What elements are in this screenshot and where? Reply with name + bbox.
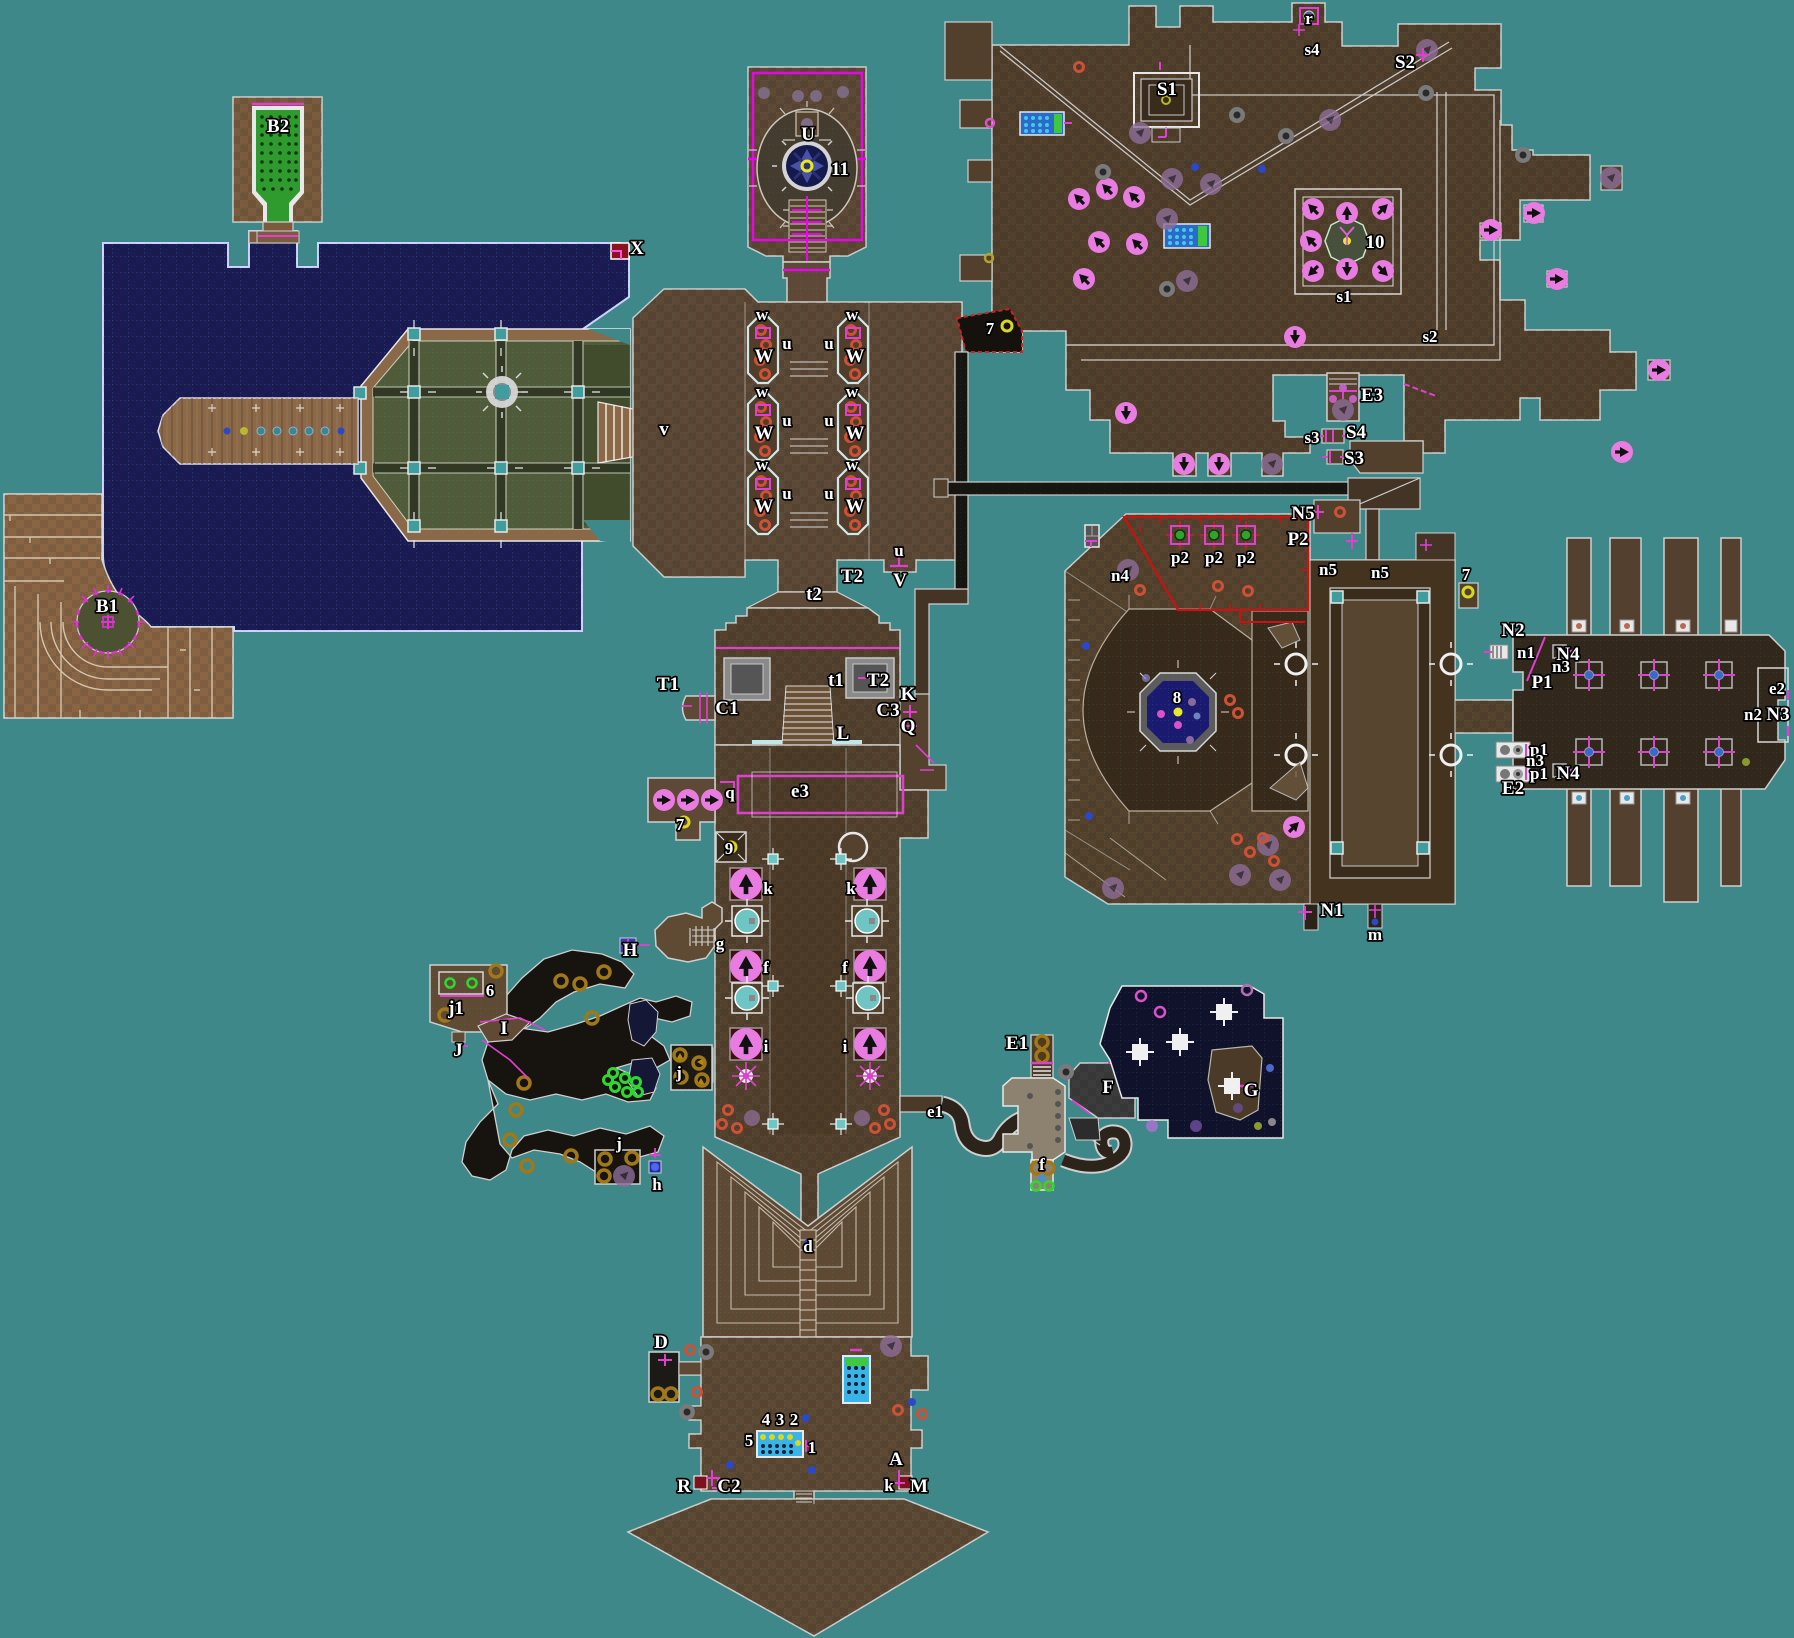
svg-text:u: u: [824, 334, 833, 353]
svg-text:m: m: [1368, 925, 1382, 944]
svg-text:7: 7: [676, 815, 685, 834]
svg-text:t1: t1: [828, 670, 844, 691]
svg-text:S4: S4: [1346, 422, 1367, 443]
svg-text:e2: e2: [1769, 679, 1785, 698]
svg-text:1: 1: [808, 1438, 817, 1457]
svg-text:W: W: [755, 496, 774, 517]
svg-text:k: k: [884, 1476, 894, 1495]
svg-text:G: G: [1244, 1080, 1259, 1101]
svg-text:B2: B2: [267, 116, 289, 137]
svg-text:u: u: [782, 484, 791, 503]
svg-text:L: L: [837, 723, 850, 744]
svg-text:u: u: [782, 334, 791, 353]
svg-text:R: R: [677, 1476, 691, 1497]
svg-text:N2: N2: [1501, 620, 1524, 641]
svg-text:J: J: [453, 1040, 463, 1061]
svg-text:11: 11: [831, 159, 849, 180]
svg-text:n5: n5: [1319, 560, 1337, 579]
svg-text:A: A: [889, 1449, 903, 1470]
svg-text:X: X: [630, 238, 644, 259]
svg-text:10: 10: [1366, 232, 1385, 253]
svg-text:S3: S3: [1344, 448, 1364, 469]
svg-text:T1: T1: [657, 674, 679, 695]
svg-text:Q: Q: [901, 716, 916, 737]
svg-text:K: K: [901, 684, 916, 705]
svg-text:n2: n2: [1744, 705, 1762, 724]
svg-text:w: w: [756, 305, 769, 324]
svg-text:W: W: [846, 423, 865, 444]
svg-text:T2: T2: [841, 566, 863, 587]
svg-text:p2: p2: [1171, 548, 1189, 567]
svg-text:P1: P1: [1531, 672, 1552, 693]
svg-text:S2: S2: [1395, 52, 1415, 73]
svg-text:7: 7: [1462, 565, 1471, 584]
svg-text:h: h: [652, 1175, 662, 1194]
svg-text:s3: s3: [1304, 428, 1319, 447]
svg-text:n1: n1: [1517, 643, 1535, 662]
svg-text:k: k: [763, 879, 773, 898]
svg-text:g: g: [716, 934, 725, 953]
svg-text:N1: N1: [1320, 900, 1343, 921]
svg-text:j: j: [675, 1063, 682, 1082]
svg-text:N5: N5: [1291, 503, 1314, 524]
svg-text:C3: C3: [876, 700, 899, 721]
svg-text:e1: e1: [927, 1102, 943, 1121]
svg-text:T2: T2: [867, 670, 889, 691]
svg-text:E2: E2: [1502, 778, 1524, 799]
svg-text:s4: s4: [1304, 40, 1320, 59]
svg-text:p2: p2: [1205, 548, 1223, 567]
svg-text:7: 7: [986, 319, 995, 338]
svg-text:p1: p1: [1530, 764, 1548, 783]
svg-text:f: f: [842, 958, 848, 977]
svg-text:D: D: [654, 1332, 668, 1353]
svg-text:u: u: [824, 484, 833, 503]
svg-text:8: 8: [1173, 688, 1182, 707]
svg-text:s1: s1: [1336, 287, 1351, 306]
svg-text:e3: e3: [791, 781, 809, 802]
svg-text:F: F: [1102, 1077, 1114, 1098]
svg-text:E3: E3: [1361, 385, 1383, 406]
svg-text:n3: n3: [1552, 657, 1570, 676]
svg-text:W: W: [846, 346, 865, 367]
svg-text:S1: S1: [1157, 79, 1177, 100]
svg-text:H: H: [623, 940, 638, 961]
svg-text:3: 3: [776, 1410, 785, 1429]
svg-text:i: i: [764, 1037, 769, 1056]
svg-text:4: 4: [762, 1410, 771, 1429]
svg-text:k: k: [846, 879, 856, 898]
svg-text:M: M: [910, 1476, 928, 1497]
svg-text:B1: B1: [96, 596, 118, 617]
svg-text:W: W: [846, 496, 865, 517]
svg-text:N4: N4: [1556, 763, 1580, 784]
svg-text:N3: N3: [1766, 704, 1789, 725]
svg-text:n4: n4: [1111, 566, 1129, 585]
svg-text:j1: j1: [447, 998, 464, 1019]
svg-text:j: j: [615, 1134, 622, 1153]
svg-text:v: v: [659, 419, 669, 440]
svg-text:9: 9: [725, 839, 734, 858]
svg-text:u: u: [824, 411, 833, 430]
svg-text:u: u: [894, 541, 903, 560]
svg-text:U: U: [801, 124, 815, 145]
svg-text:s2: s2: [1422, 327, 1437, 346]
svg-text:V: V: [893, 570, 907, 591]
svg-text:P2: P2: [1287, 529, 1308, 550]
svg-text:6: 6: [486, 981, 495, 1000]
svg-text:p2: p2: [1237, 548, 1255, 567]
svg-text:r: r: [1305, 9, 1313, 28]
svg-text:w: w: [756, 382, 769, 401]
svg-text:2: 2: [790, 1410, 799, 1429]
svg-text:w: w: [846, 455, 859, 474]
svg-text:C2: C2: [717, 1476, 740, 1497]
svg-text:d: d: [803, 1237, 813, 1256]
svg-text:w: w: [756, 455, 769, 474]
svg-text:f: f: [1039, 1155, 1045, 1174]
svg-text:w: w: [846, 305, 859, 324]
svg-text:u: u: [782, 411, 791, 430]
svg-text:f: f: [763, 958, 769, 977]
svg-text:w: w: [846, 382, 859, 401]
svg-text:i: i: [843, 1037, 848, 1056]
svg-text:n5: n5: [1371, 563, 1389, 582]
svg-text:q: q: [725, 783, 735, 802]
svg-text:t2: t2: [806, 584, 822, 605]
svg-text:C1: C1: [715, 698, 738, 719]
svg-text:W: W: [755, 346, 774, 367]
svg-text:E1: E1: [1006, 1033, 1028, 1054]
svg-text:5: 5: [745, 1431, 754, 1450]
svg-text:I: I: [500, 1018, 507, 1039]
svg-text:W: W: [755, 423, 774, 444]
